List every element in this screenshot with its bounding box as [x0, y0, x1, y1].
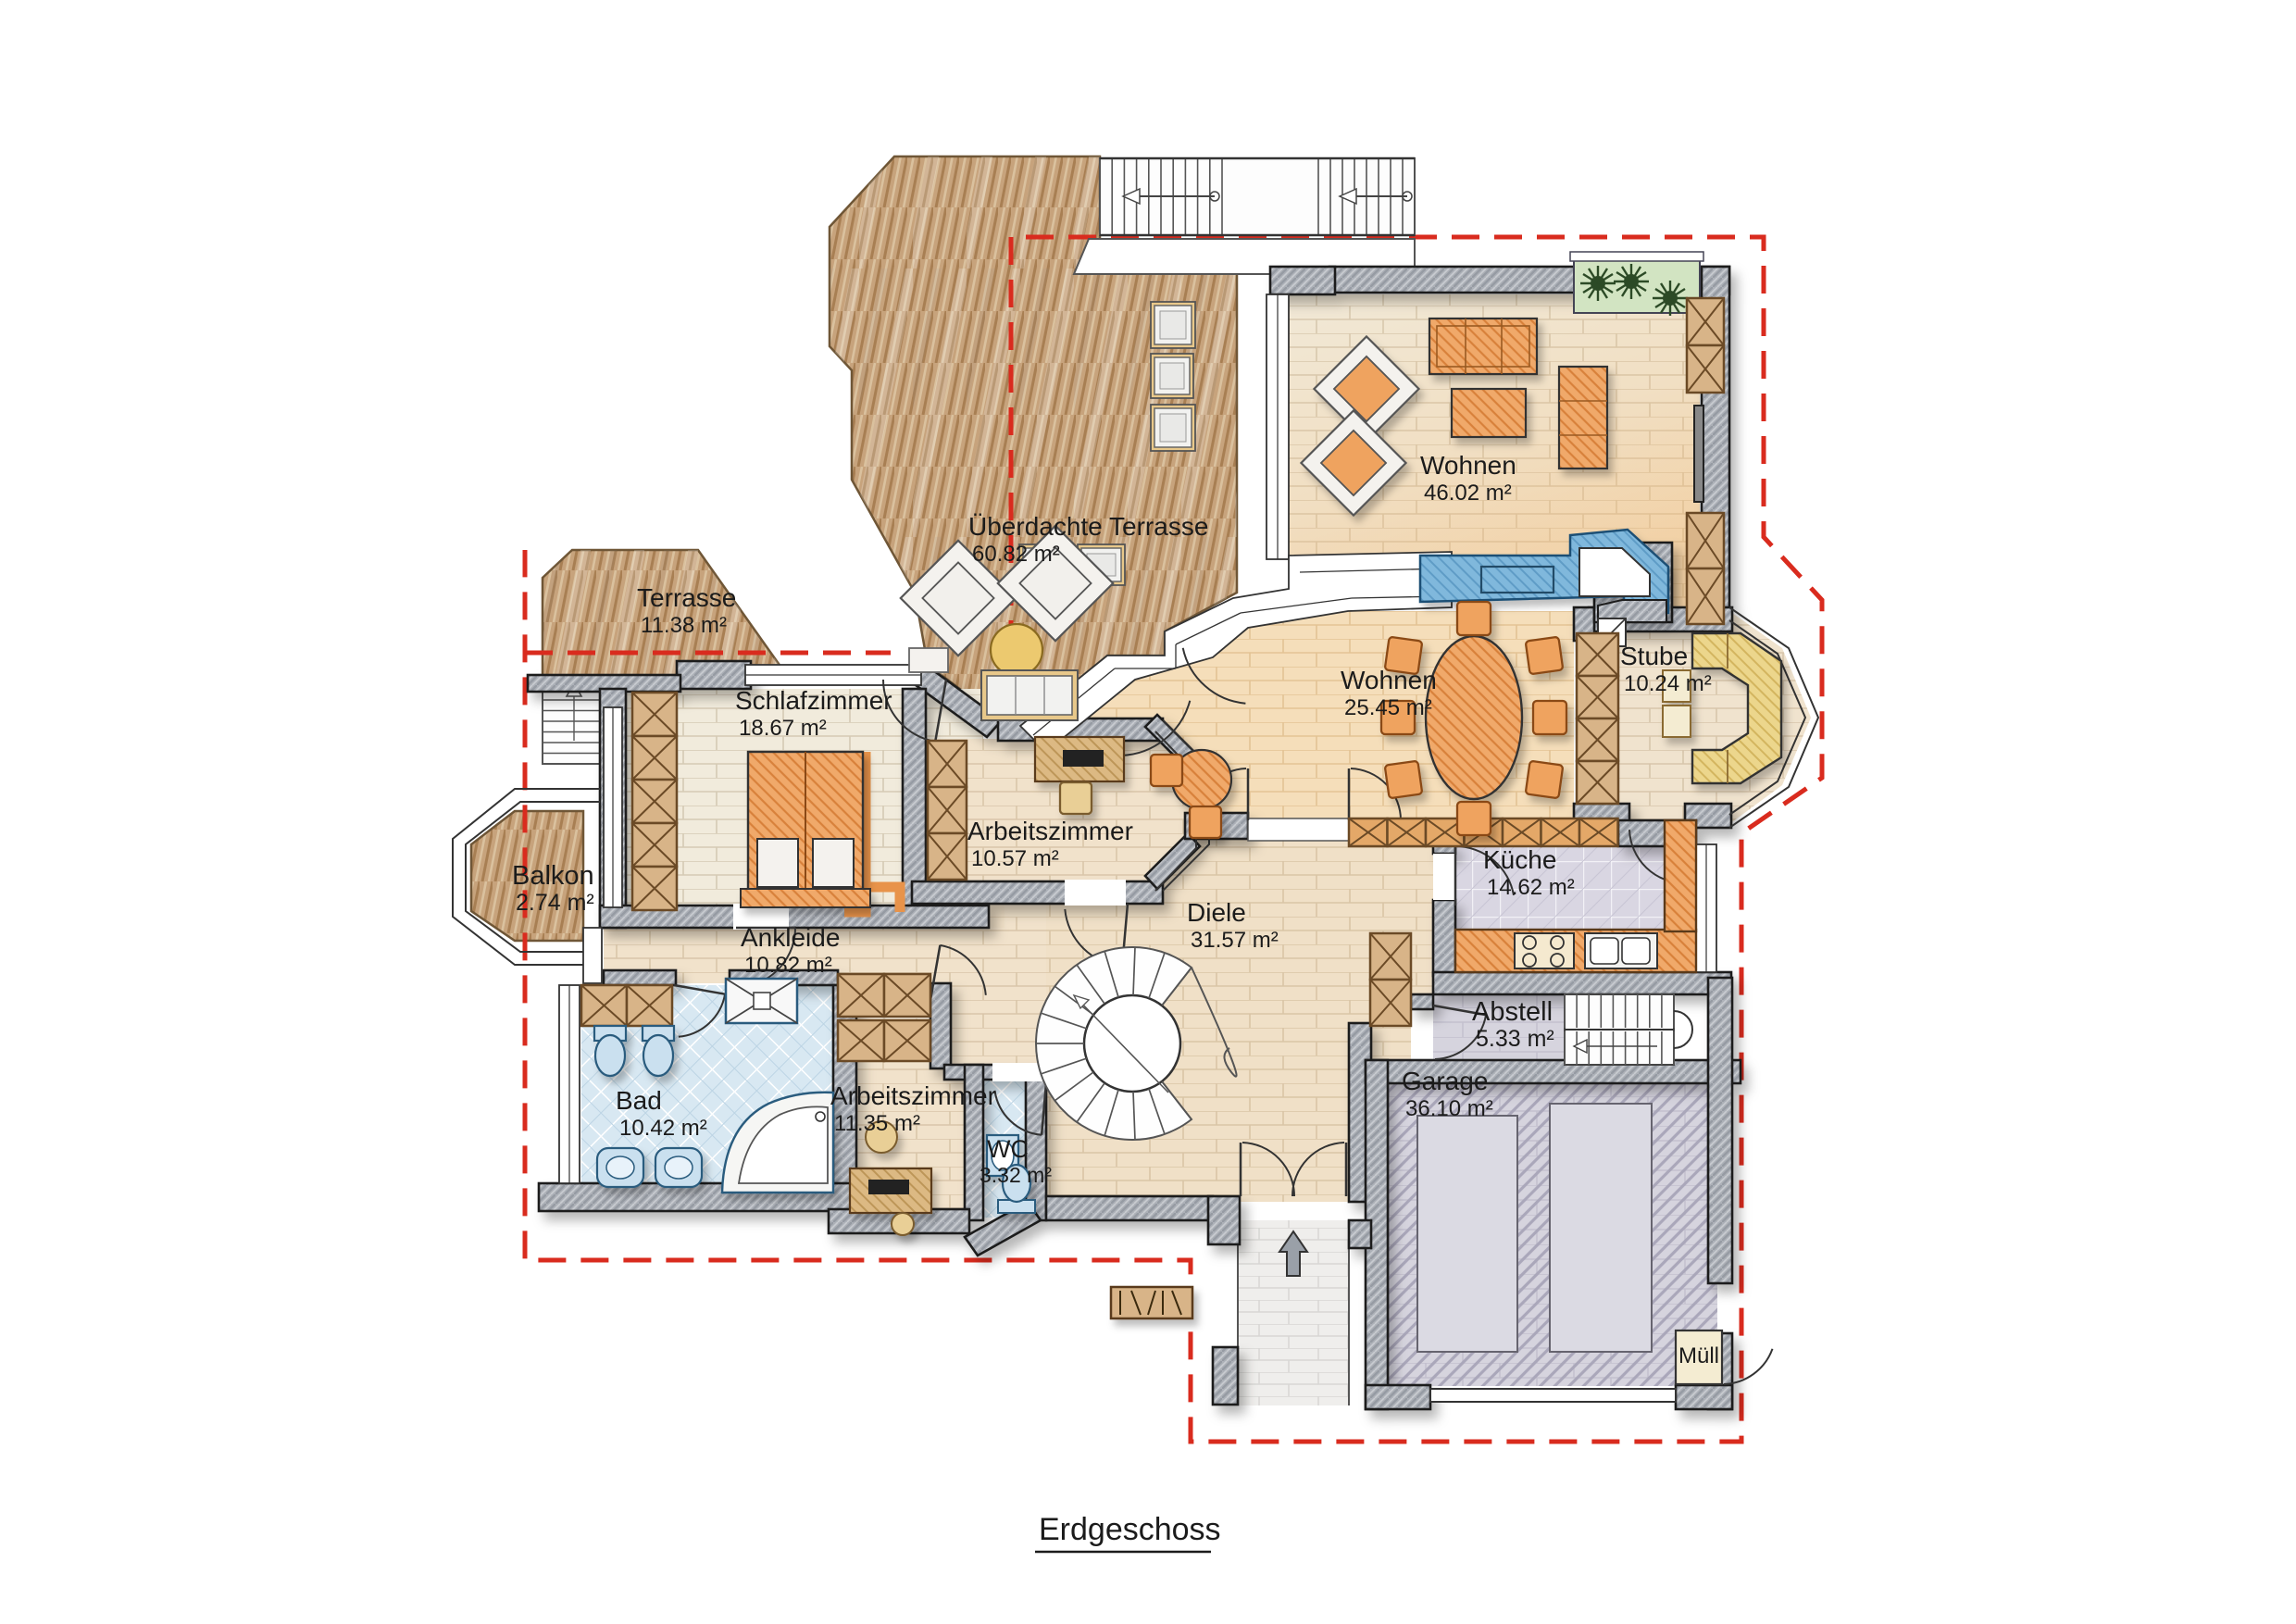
svg-text:Schlafzimmer: Schlafzimmer — [735, 686, 892, 715]
svg-text:Wohnen: Wohnen — [1341, 666, 1437, 694]
svg-text:WC: WC — [987, 1135, 1029, 1163]
svg-text:Erdgeschoss: Erdgeschoss — [1039, 1512, 1221, 1547]
svg-text:Ankleide: Ankleide — [741, 923, 840, 952]
svg-text:25.45 m²: 25.45 m² — [1344, 695, 1432, 720]
svg-text:Arbeitszimmer: Arbeitszimmer — [967, 817, 1133, 845]
svg-text:11.38 m²: 11.38 m² — [641, 613, 727, 638]
svg-text:Müll: Müll — [1678, 1343, 1719, 1368]
svg-text:2.74 m²: 2.74 m² — [516, 890, 594, 916]
svg-text:Wohnen: Wohnen — [1420, 451, 1516, 480]
svg-text:14.62 m²: 14.62 m² — [1487, 875, 1575, 900]
svg-text:10.57 m²: 10.57 m² — [971, 846, 1059, 871]
svg-text:Abstell: Abstell — [1472, 997, 1553, 1027]
svg-text:60.82 m²: 60.82 m² — [972, 542, 1060, 567]
svg-text:5.33 m²: 5.33 m² — [1476, 1026, 1554, 1052]
svg-text:Garage: Garage — [1402, 1067, 1488, 1095]
svg-text:36.10 m²: 36.10 m² — [1405, 1096, 1493, 1121]
svg-text:31.57 m²: 31.57 m² — [1191, 928, 1279, 953]
svg-text:Diele: Diele — [1187, 898, 1246, 927]
svg-text:10.82 m²: 10.82 m² — [744, 953, 832, 978]
svg-text:Arbeitszimmer: Arbeitszimmer — [830, 1081, 996, 1110]
svg-text:Terrasse: Terrasse — [637, 583, 736, 612]
svg-text:Balkon: Balkon — [512, 861, 594, 891]
svg-text:Bad: Bad — [616, 1086, 662, 1115]
svg-text:11.35 m²: 11.35 m² — [834, 1111, 920, 1136]
svg-text:Überdachte Terrasse: Überdachte Terrasse — [968, 512, 1208, 541]
svg-text:10.42 m²: 10.42 m² — [619, 1116, 707, 1141]
svg-text:46.02 m²: 46.02 m² — [1424, 481, 1512, 506]
svg-text:Küche: Küche — [1483, 845, 1556, 874]
svg-text:3.32 m²: 3.32 m² — [980, 1163, 1052, 1187]
svg-text:Stube: Stube — [1620, 642, 1688, 670]
svg-text:10.24 m²: 10.24 m² — [1624, 671, 1712, 696]
svg-text:18.67 m²: 18.67 m² — [739, 716, 827, 741]
